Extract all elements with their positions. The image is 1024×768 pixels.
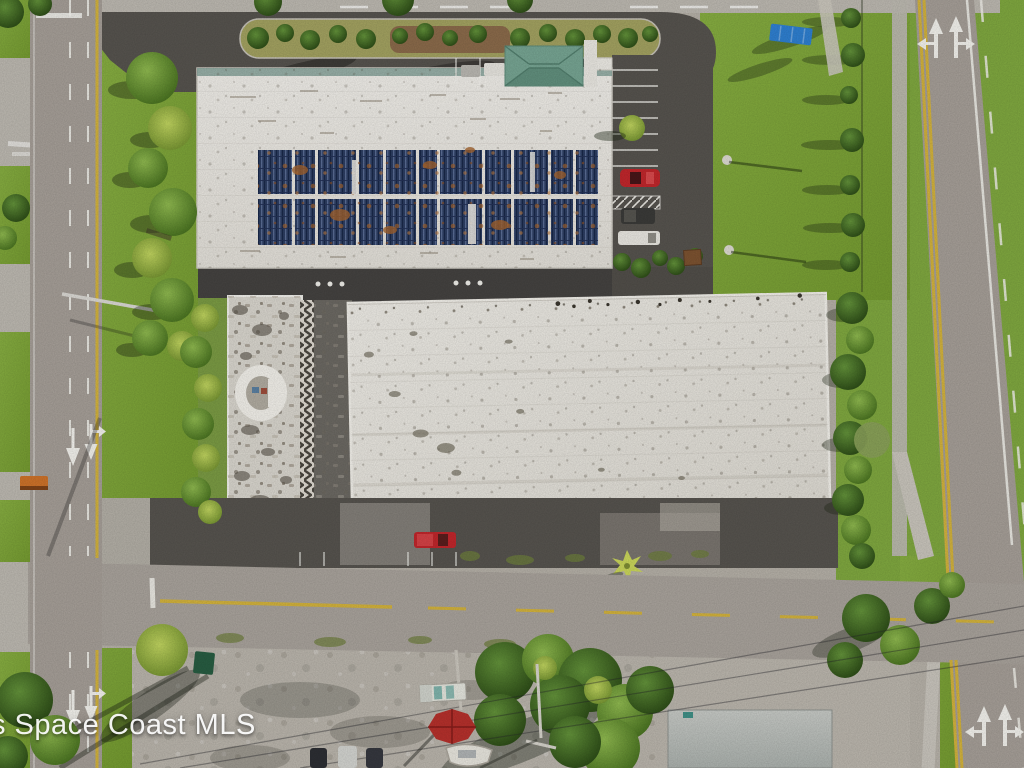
photo-grain (0, 0, 1024, 768)
aerial-photo: s Space Coast MLS (0, 0, 1024, 768)
aerial-photo-svg (0, 0, 1024, 768)
